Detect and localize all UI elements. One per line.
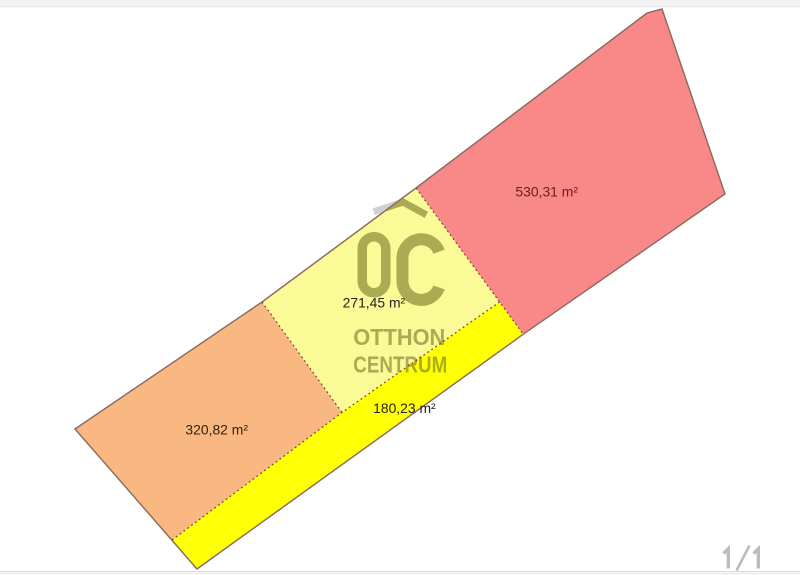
svg-text:530,31 m²: 530,31 m²: [515, 184, 578, 200]
svg-text:OTTHON: OTTHON: [353, 324, 445, 350]
svg-text:CENTRUM: CENTRUM: [353, 352, 447, 378]
svg-text:180,23 m²: 180,23 m²: [373, 400, 436, 416]
svg-text:271,45 m²: 271,45 m²: [343, 295, 406, 311]
svg-text:320,82 m²: 320,82 m²: [185, 422, 248, 438]
